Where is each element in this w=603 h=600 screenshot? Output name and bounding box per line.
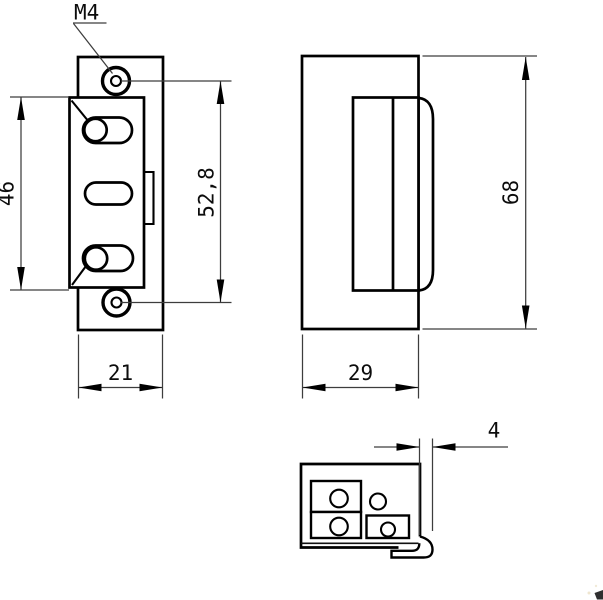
dim-label-screw-spacing: 52,8 — [195, 167, 219, 218]
paper-speckle — [588, 592, 591, 595]
arrow-down-icon — [17, 267, 25, 290]
dim-label-front-width: 21 — [108, 361, 133, 385]
technical-drawing: M4 52,8 46 21 — [0, 0, 603, 600]
arrow-right-icon — [140, 384, 163, 392]
drawing-canvas: M4 52,8 46 21 — [0, 0, 603, 600]
dim-label-cutout-height: 46 — [0, 181, 19, 206]
arrow-left-icon — [303, 384, 326, 392]
bottom-hole-1 — [330, 490, 348, 508]
arrow-down-icon — [217, 280, 225, 303]
arrow-up-icon — [217, 81, 225, 104]
side-keeper-bulge — [419, 98, 433, 291]
front-view — [70, 57, 164, 330]
bottom-hole-3 — [370, 494, 386, 510]
bottom-view — [301, 464, 433, 558]
corner-mark — [595, 590, 603, 600]
arrow-down-icon — [522, 306, 530, 329]
bottom-hole-4 — [381, 523, 395, 537]
arrow-left-icon — [433, 443, 456, 451]
side-view — [302, 56, 433, 329]
latch-slot-middle — [85, 183, 132, 205]
dim-label-side-depth: 29 — [348, 361, 373, 385]
screw-hole-bottom-inner — [112, 298, 122, 308]
screw-hole-top-inner — [111, 76, 121, 86]
arrow-left-icon — [79, 384, 102, 392]
paper-speckle — [595, 585, 597, 587]
arrow-right-icon — [397, 443, 420, 451]
thread-callout-label: M4 — [74, 1, 99, 25]
arrow-up-icon — [17, 97, 25, 120]
dim-label-side-height: 68 — [499, 180, 523, 205]
bottom-hole-2 — [330, 518, 348, 536]
dim-label-lip-offset: 4 — [488, 419, 501, 443]
arrow-up-icon — [522, 57, 530, 80]
side-keeper-outline — [353, 98, 419, 291]
arrow-right-icon — [396, 384, 419, 392]
page-corner-artifact — [588, 585, 603, 600]
